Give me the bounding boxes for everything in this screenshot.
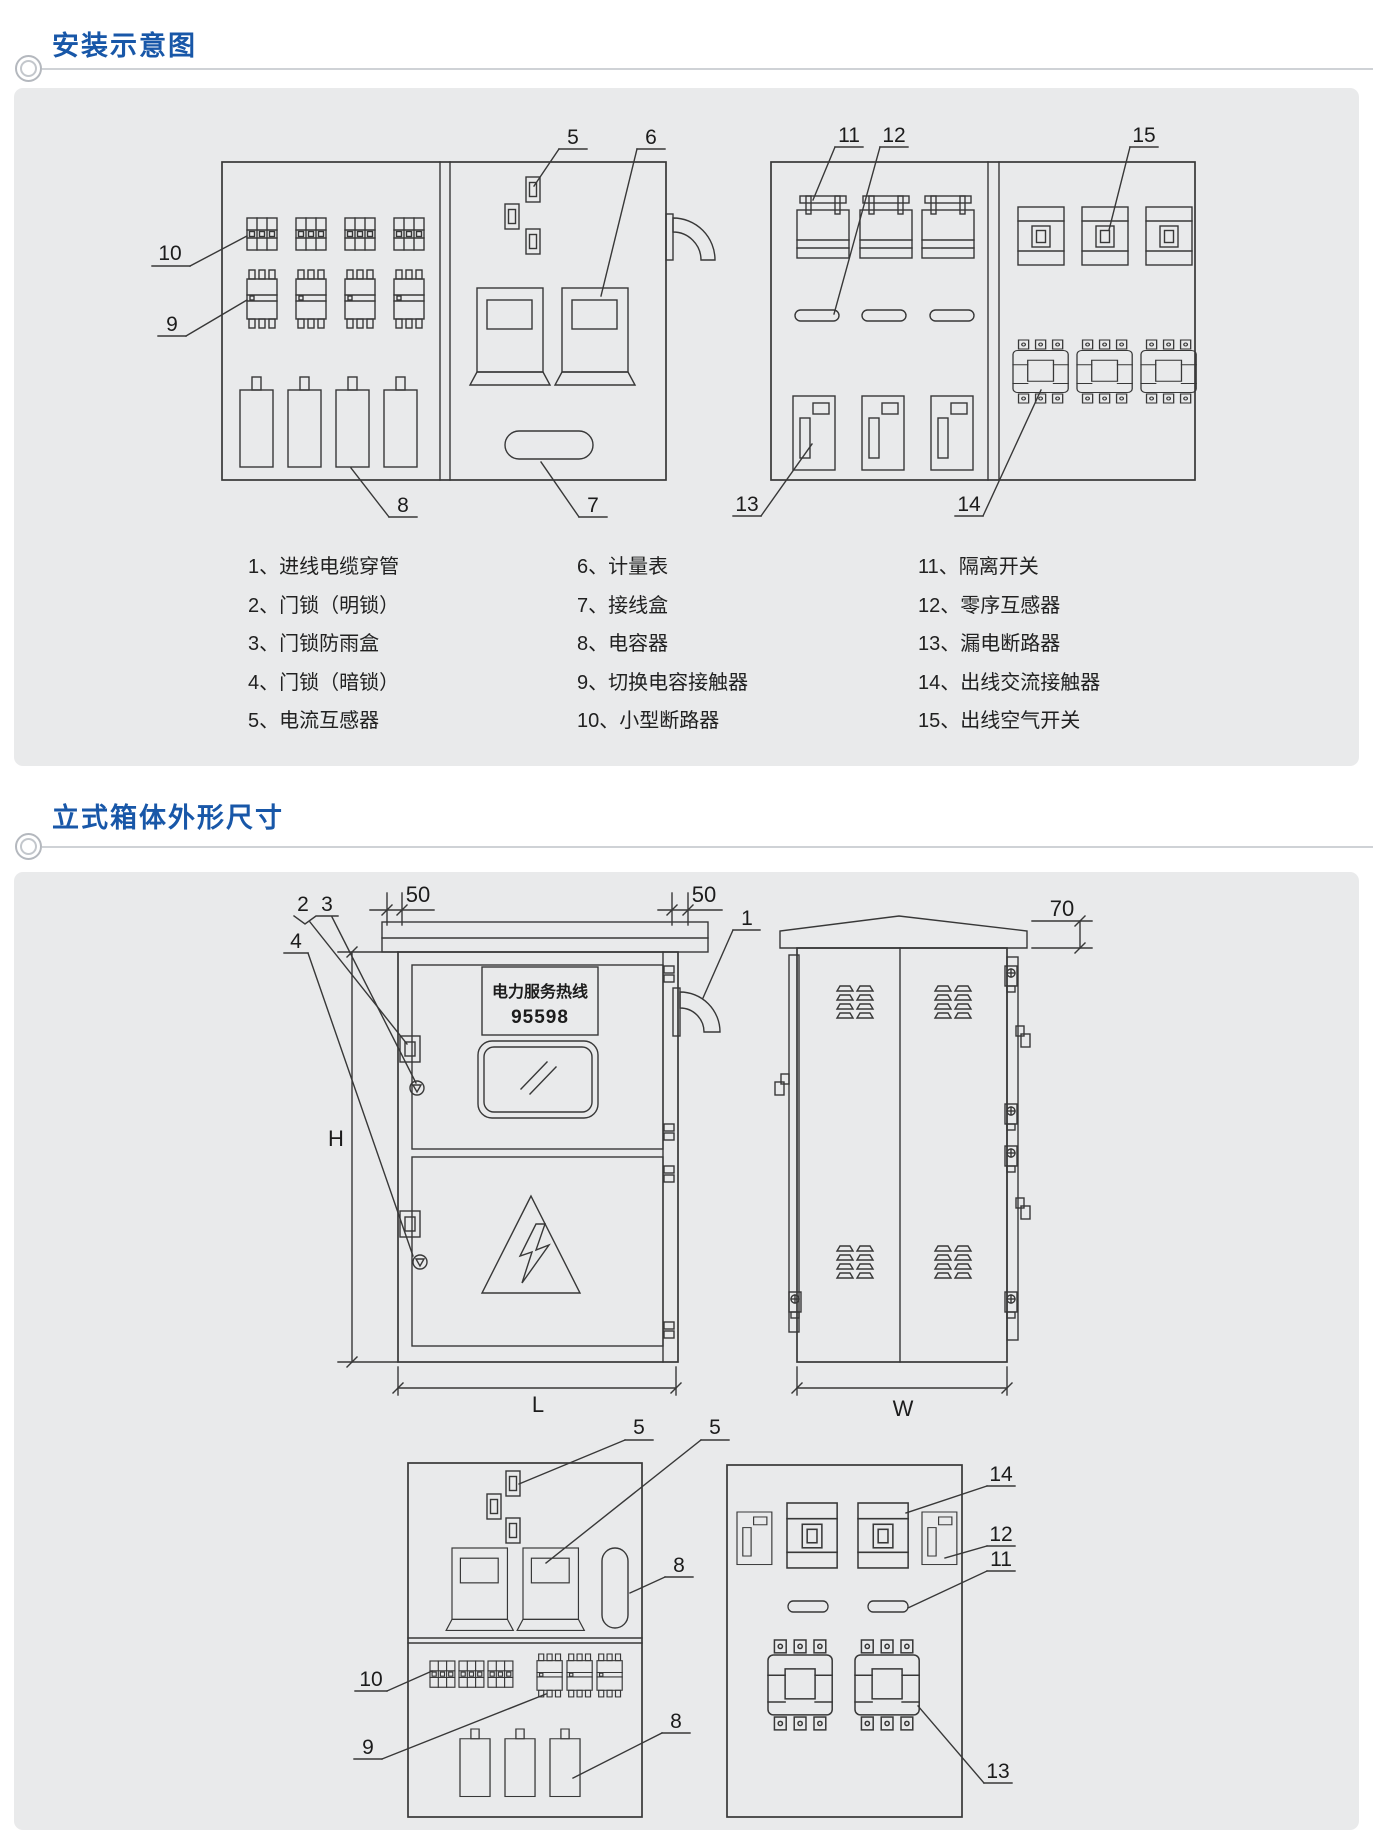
callout-5b: 5 [709, 1416, 721, 1439]
section2-bullet-ring-icon [15, 833, 42, 860]
callout-11b: 11 [990, 1548, 1012, 1571]
section1-bullet-ring-icon [15, 55, 42, 82]
dim-70: 70 [1050, 896, 1074, 921]
callout-8a: 8 [673, 1554, 685, 1577]
hotline-label: 电力服务热线 [492, 982, 588, 1001]
callout-6: 6 [645, 126, 657, 149]
dim-H: H [328, 1126, 344, 1151]
callout-5a: 5 [633, 1416, 645, 1439]
callout-10b: 10 [359, 1668, 382, 1691]
catalog-page: { "sections": { "s1_title": "安装示意图", "s2… [0, 0, 1373, 1848]
junction-box [505, 431, 593, 459]
dim-50-left: 50 [406, 882, 430, 907]
dim-50-right: 50 [692, 882, 716, 907]
callout-8: 8 [397, 494, 409, 517]
dim-L: L [532, 1392, 544, 1417]
capacitor-contactors-row [247, 270, 424, 328]
dim-W: W [893, 1396, 914, 1421]
capacitors-row [240, 377, 417, 467]
callout-3: 3 [321, 893, 333, 916]
callout-11: 11 [838, 124, 860, 147]
mini-circuit-breakers-row [247, 218, 424, 250]
side-view [775, 916, 1030, 1362]
isolator-switches-row [797, 196, 974, 258]
door-swing-duct [666, 214, 715, 260]
ac-contactors-row [1013, 340, 1196, 403]
air-switches-row [1018, 207, 1192, 265]
install-callout-leaders [152, 147, 1158, 517]
current-transformers [505, 177, 540, 254]
zero-sequence-cts-row [795, 310, 974, 321]
technical-drawing-overlay: 10 9 5 6 8 7 11 12 15 13 14 2 3 4 1 5 5 … [0, 0, 1373, 1848]
leakage-breakers-row [793, 396, 973, 470]
callout-9b: 9 [362, 1736, 374, 1759]
callout-10: 10 [158, 242, 181, 265]
side-view-dimensions [792, 916, 1092, 1395]
callout-15: 15 [1132, 124, 1155, 147]
callout-14: 14 [957, 493, 981, 516]
callout-9: 9 [166, 313, 178, 336]
callout-14b: 14 [989, 1463, 1013, 1486]
callout-2: 2 [297, 893, 309, 916]
callout-13: 13 [735, 493, 758, 516]
callout-4: 4 [290, 930, 302, 953]
callout-8b: 8 [670, 1710, 682, 1733]
callout-13b: 13 [986, 1760, 1009, 1783]
callout-5: 5 [567, 126, 579, 149]
bottom-left-internal-view [408, 1463, 642, 1817]
callout-12b: 12 [989, 1523, 1012, 1546]
callout-1: 1 [741, 907, 753, 930]
bottom-right-internal-view [727, 1465, 962, 1817]
energy-meters [470, 288, 635, 385]
callout-12: 12 [882, 124, 905, 147]
hotline-number: 95598 [511, 1007, 569, 1028]
callout-7: 7 [587, 494, 599, 517]
